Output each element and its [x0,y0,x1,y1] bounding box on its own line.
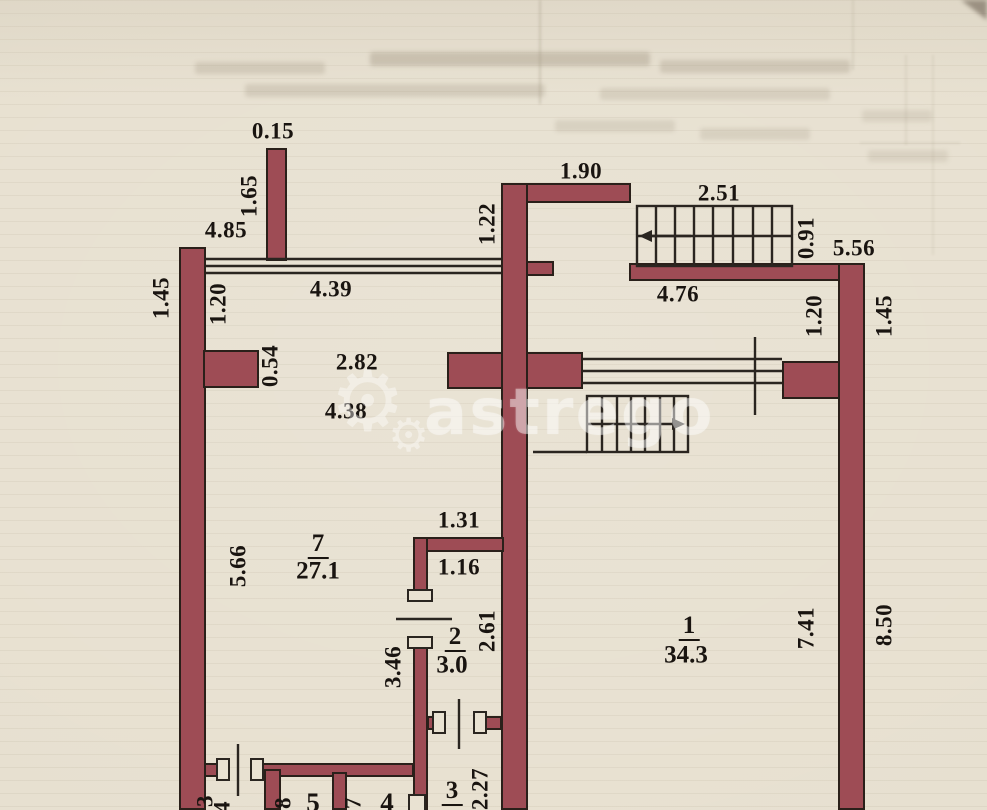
label-dim-1-20-right: 1.20 [803,295,826,337]
label-room-7-area: 27.1 [296,559,340,584]
label-dim-0-54: 0.54 [259,345,282,387]
floor-plan-photo: 0.154.854.391.902.514.765.562.824.381.31… [0,0,987,810]
label-room-7-number: 7 [308,531,329,559]
label-room-5-number: 5 [306,790,320,810]
label-dim-5-66: 5.66 [227,545,250,587]
window-top [206,259,501,273]
stair-arrow-upper [639,230,652,242]
staircase-upper [637,206,792,266]
label-dim-0-91: 0.91 [795,217,818,259]
label-dim-2-27: 2.27 [469,768,492,810]
label-dim-2-61: 2.61 [476,610,499,652]
label-dim-1-22: 1.22 [476,203,499,245]
label-dim-7-41: 7.41 [795,607,818,649]
label-dim-4-76: 4.76 [657,283,699,306]
label-room-2-area: 3.0 [436,653,467,678]
label-dim-1-45-right: 1.45 [873,295,896,337]
label-dim-3-46: 3.46 [382,646,405,688]
label-dim-1-31: 1.31 [438,509,480,532]
label-dim-1-16: 1.16 [438,556,480,579]
label-dim-4-39: 4.39 [310,278,352,301]
label-dim-1-90: 1.90 [560,160,602,183]
watermark-text: astrego [424,376,715,450]
label-dim-7-part: 7 [342,797,365,809]
label-dim-1-65: 1.65 [238,175,261,217]
label-room-4-number: 4 [380,790,394,810]
label-dim-2-51: 2.51 [698,182,740,205]
label-dim-4-part: 4 [211,801,234,810]
label-room-1-number: 1 [679,613,700,641]
label-room-2-number: 2 [445,624,466,652]
label-room-1-area: 34.3 [664,643,708,668]
label-dim-8-part: 8 [272,797,295,809]
label-dim-1-45-left: 1.45 [150,277,173,319]
label-dim-4-85: 4.85 [205,219,247,242]
label-dim-0-15: 0.15 [252,120,294,143]
label-dim-1-20-left: 1.20 [207,283,230,325]
label-room-3-number: 3 [442,778,463,806]
label-dim-8-50: 8.50 [873,604,896,646]
label-dim-5-56: 5.56 [833,237,875,260]
